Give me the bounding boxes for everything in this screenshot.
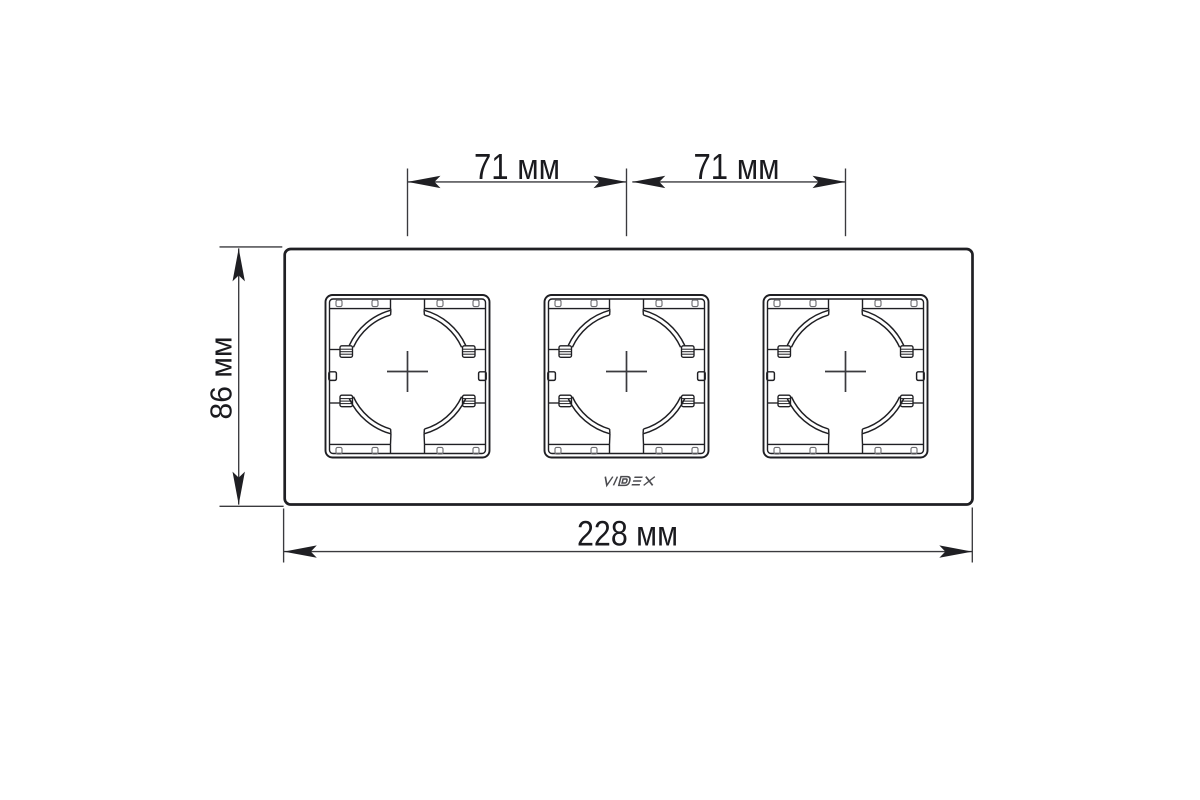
- svg-text:228 мм: 228 мм: [577, 515, 678, 554]
- svg-text:86 мм: 86 мм: [204, 337, 239, 420]
- svg-text:71 мм: 71 мм: [694, 146, 780, 187]
- svg-text:71 мм: 71 мм: [474, 146, 560, 187]
